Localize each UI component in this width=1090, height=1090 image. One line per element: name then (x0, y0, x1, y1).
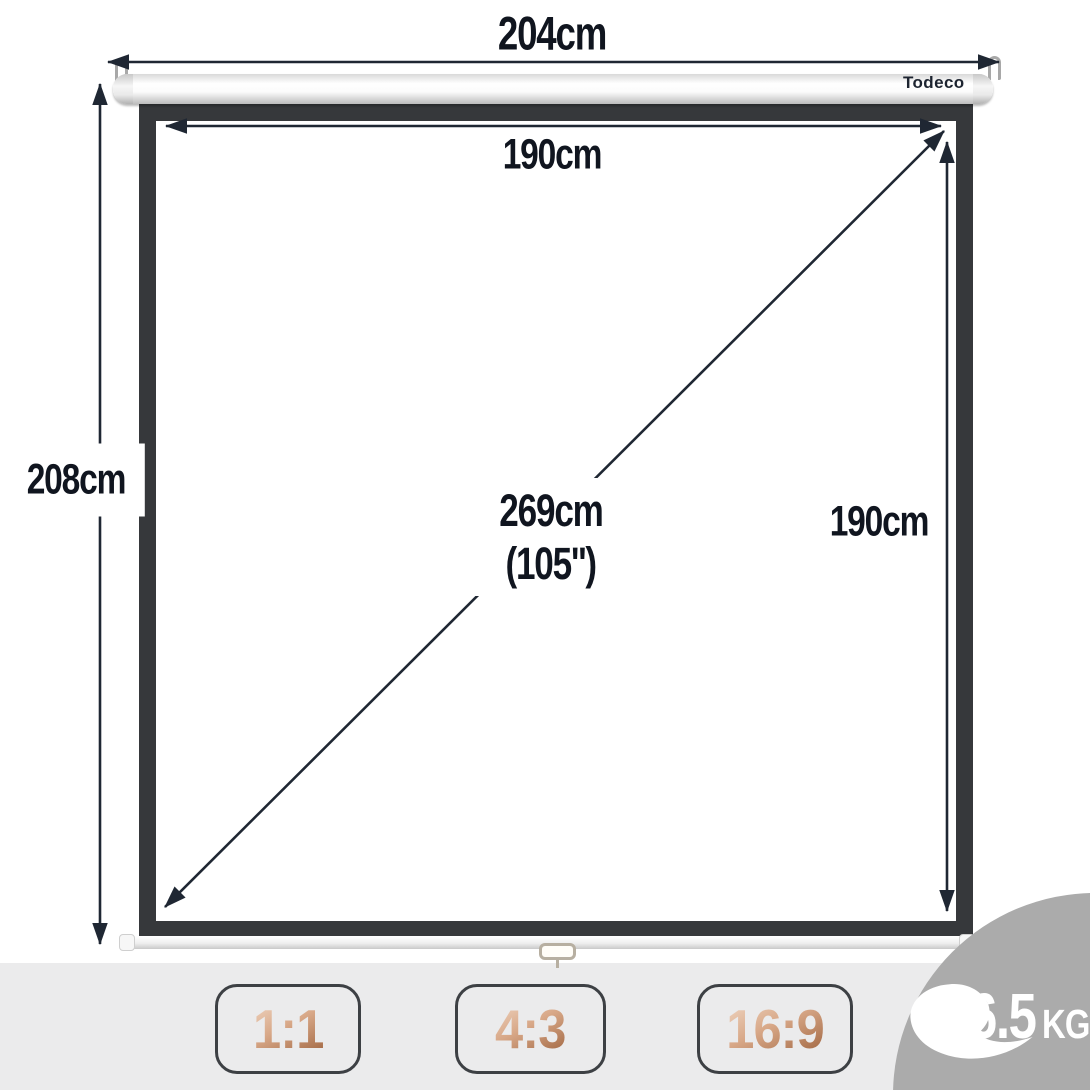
diagonal-label: 269cm (105'') (471, 478, 632, 596)
outer-width-label: 204cm (483, 6, 622, 61)
outer-height-label: 208cm (7, 444, 145, 517)
weight-text: 6.5 KG (969, 979, 1090, 1053)
inner-width-label: 190cm (489, 131, 615, 180)
inner-height-label: 190cm (816, 498, 942, 547)
diagonal-cm-label: 269cm (499, 484, 602, 537)
weight-unit: KG (1042, 1001, 1090, 1048)
product-dimension-image: Todeco 204cm 190cm 208cm 190cm 269cm (10… (0, 0, 1090, 1090)
weight-value: 6.5 (969, 979, 1035, 1053)
diagonal-inches-label: (105'') (506, 537, 596, 590)
